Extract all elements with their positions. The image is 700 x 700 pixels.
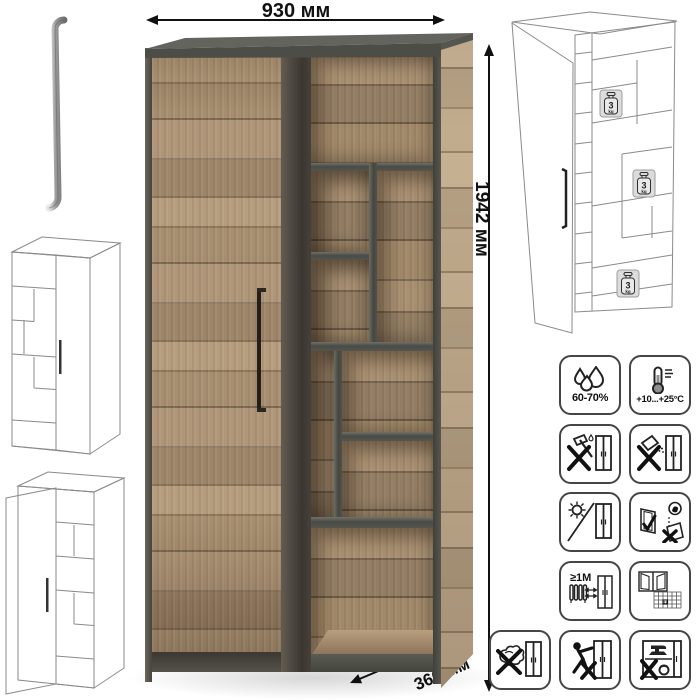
shelf-compartment <box>311 351 334 517</box>
svg-text:kg: kg <box>608 109 614 114</box>
handle-render <box>28 6 84 228</box>
shelf-divider <box>369 163 377 351</box>
load-badge: 3 kg <box>633 170 655 197</box>
cabinet-top-slab <box>140 28 480 60</box>
thermometer-icon: +10...+25°C <box>629 355 691 415</box>
no-climbing-icon <box>559 630 621 690</box>
shelf-divider <box>334 351 342 528</box>
assemble-upright-icon <box>629 492 691 552</box>
no-wet-cleaning-icon <box>489 630 551 690</box>
height-dimension-line <box>488 54 490 682</box>
wireframe-open-shelves-load: 3 kg 3 kg 3 kg <box>502 6 700 346</box>
no-spill-liquids-icon <box>629 424 691 484</box>
cabinet-bottom-base <box>311 654 433 672</box>
no-direct-sunlight-icon <box>559 492 621 552</box>
shelf-compartment <box>342 441 433 517</box>
height-arrowhead-top-icon <box>484 44 494 56</box>
shelf-board <box>311 517 433 528</box>
cabinet-side-panel <box>441 33 473 688</box>
door-handle <box>256 287 266 413</box>
cabinet-right-corner-edge <box>433 44 441 684</box>
shelf-compartment <box>377 171 433 342</box>
width-arrowhead-left-icon <box>146 15 158 25</box>
no-overload-icon <box>629 630 691 690</box>
shelf-board <box>342 432 433 441</box>
calendar-day-label: 21 <box>663 601 667 605</box>
shelf-compartment <box>311 54 433 163</box>
load-badge: 3 kg <box>617 270 639 297</box>
wireframe-open-door <box>0 460 128 700</box>
svg-text:kg: kg <box>641 189 647 194</box>
wireframe-closed-door <box>2 228 128 460</box>
cabinet-door-bottom-gap <box>152 652 281 672</box>
svg-text:kg: kg <box>625 289 631 294</box>
temperature-label: +10...+25°C <box>636 395 684 405</box>
product-infographic: 930 мм 1942 мм 366 мм <box>0 0 700 700</box>
shelf-board <box>311 342 433 351</box>
width-arrowhead-right-icon <box>433 15 445 25</box>
shelf-compartment <box>311 171 369 252</box>
width-dimension-line <box>157 19 433 21</box>
load-badge: 3 kg <box>600 90 622 117</box>
heat-source-distance-icon: ≥1М <box>559 561 621 621</box>
cabinet-bottom-floor <box>311 630 433 656</box>
cabinet-partition-panel <box>281 48 311 672</box>
humidity-label: 60-70% <box>572 393 608 404</box>
no-impact-axe-icon <box>559 424 621 484</box>
shelf-compartment <box>311 260 369 342</box>
shelf-board <box>311 252 369 260</box>
distance-label: ≥1М <box>570 572 591 584</box>
ventilate-room-icon: 21 <box>629 561 691 621</box>
height-dimension-label: 1942 мм <box>470 174 492 264</box>
cabinet-left-edge <box>145 48 152 682</box>
humidity-icon: 60-70% <box>559 355 621 415</box>
shelf-compartment <box>342 351 433 432</box>
